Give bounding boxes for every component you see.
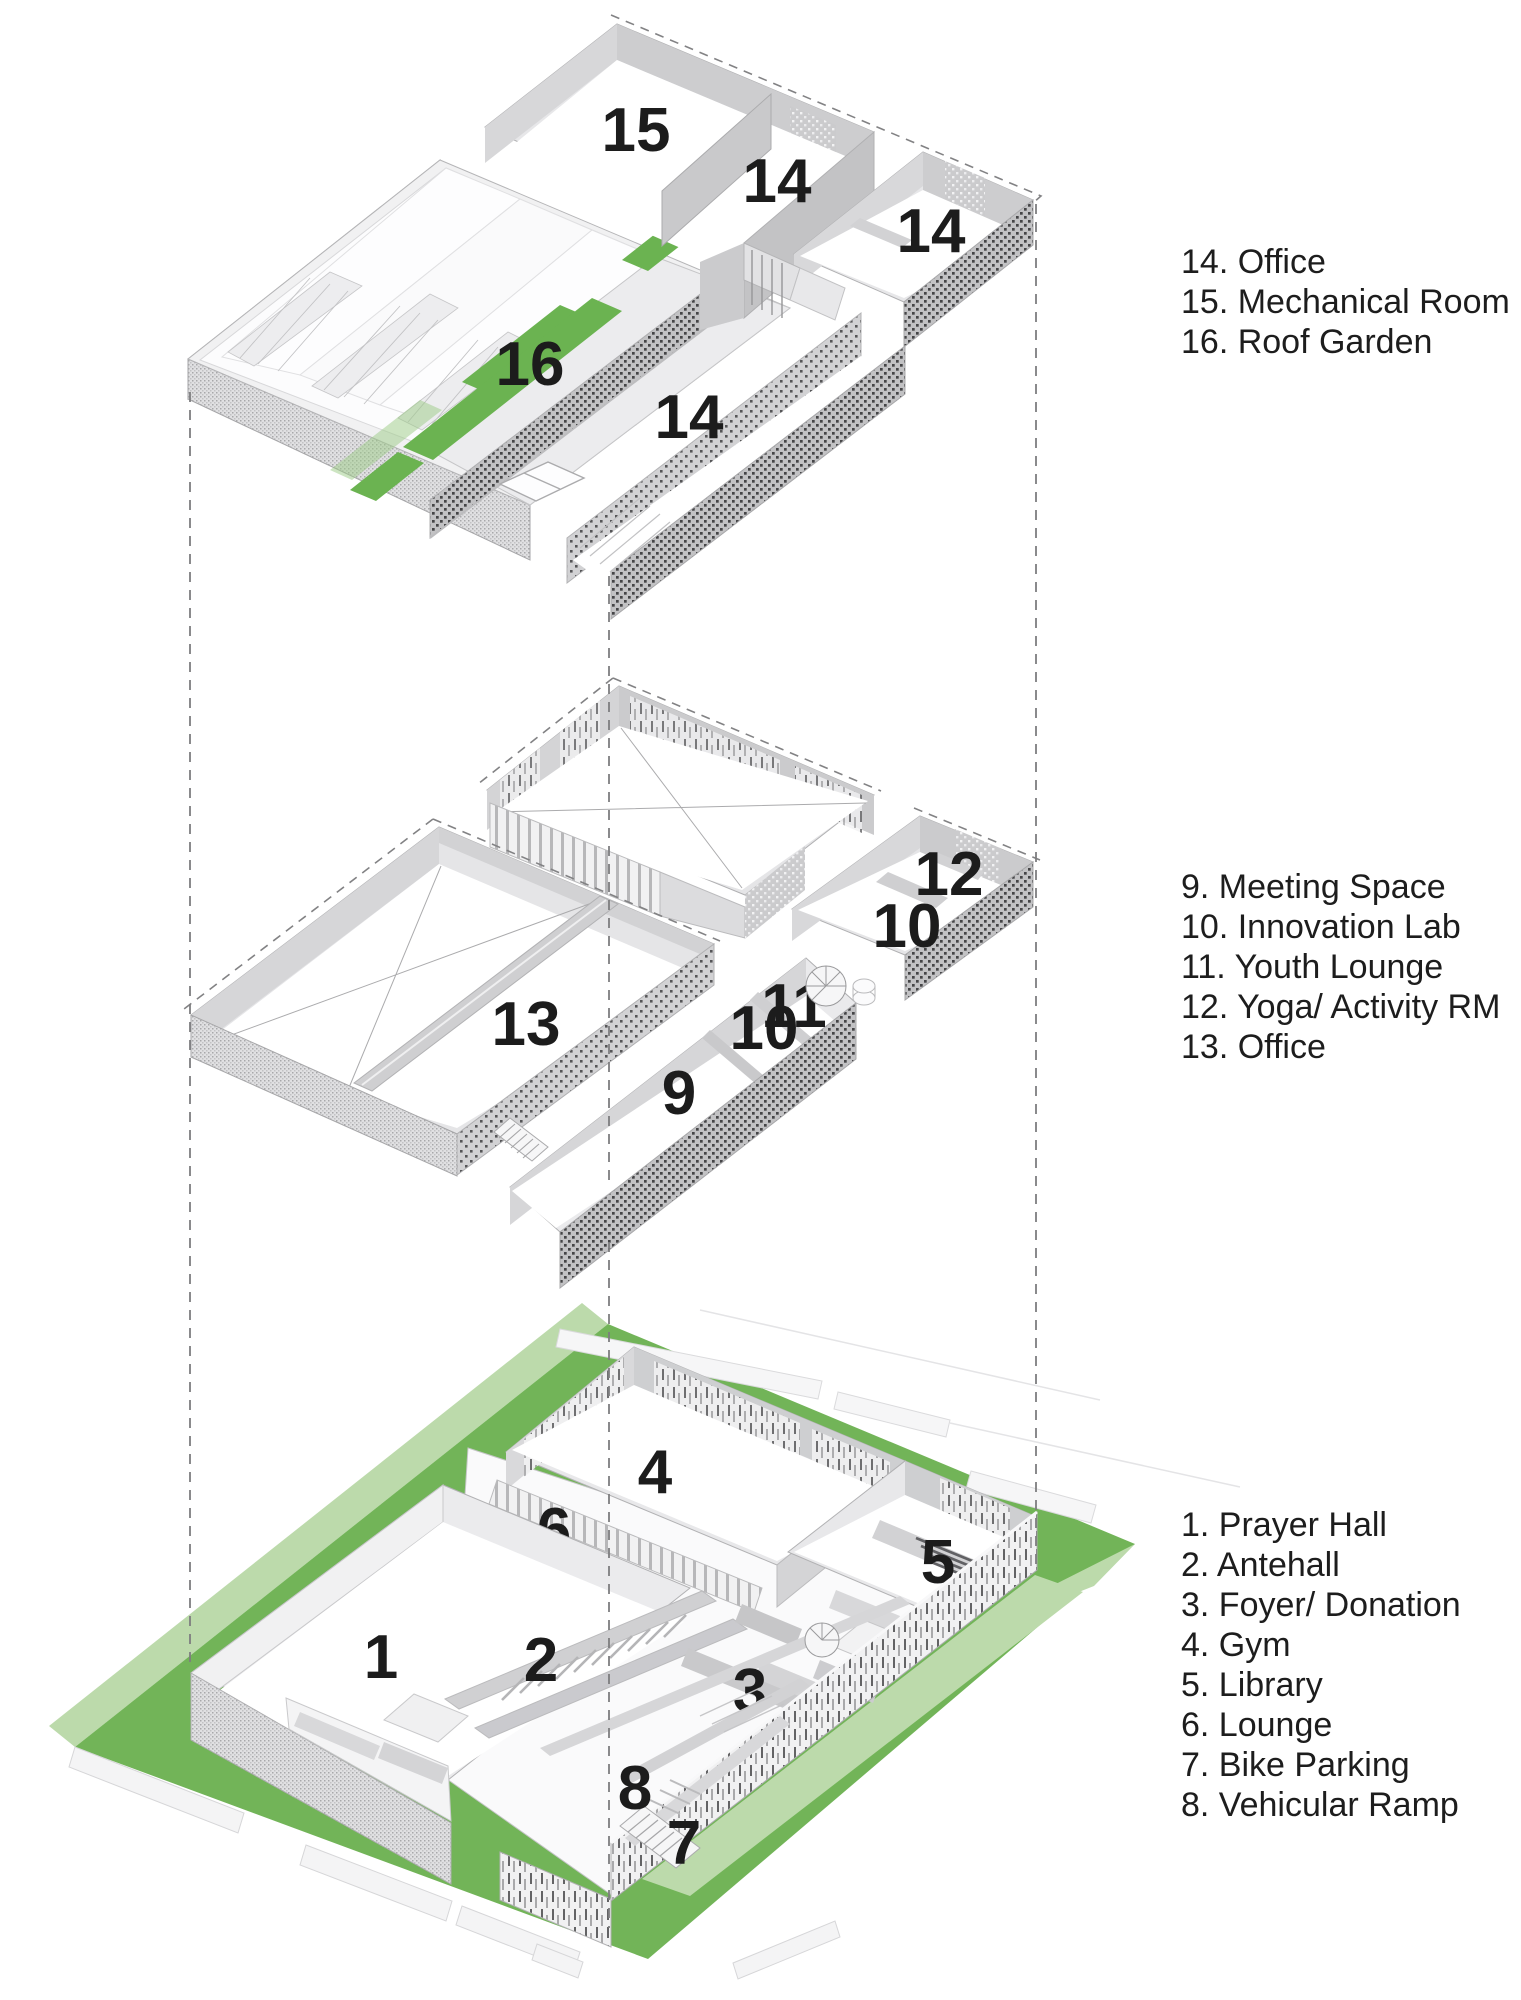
svg-text:2. Antehall: 2. Antehall [1181, 1546, 1340, 1584]
svg-text:16: 16 [496, 330, 565, 399]
svg-text:11. Youth Lounge: 11. Youth Lounge [1181, 948, 1443, 986]
svg-text:7. Bike Parking: 7. Bike Parking [1181, 1746, 1410, 1784]
svg-text:15. Mechanical Room: 15. Mechanical Room [1181, 283, 1510, 321]
svg-text:4. Gym: 4. Gym [1181, 1626, 1291, 1664]
svg-text:8: 8 [618, 1754, 652, 1823]
svg-text:9. Meeting Space: 9. Meeting Space [1181, 868, 1446, 906]
svg-text:4: 4 [638, 1438, 673, 1507]
svg-text:5. Library: 5. Library [1181, 1666, 1323, 1704]
svg-text:3. Foyer/ Donation: 3. Foyer/ Donation [1181, 1586, 1461, 1624]
svg-text:2: 2 [524, 1626, 558, 1695]
svg-text:8. Vehicular Ramp: 8. Vehicular Ramp [1181, 1786, 1459, 1824]
svg-text:14: 14 [897, 197, 966, 266]
svg-text:13. Office: 13. Office [1181, 1028, 1326, 1066]
svg-text:7: 7 [667, 1809, 701, 1878]
svg-text:6. Lounge: 6. Lounge [1181, 1706, 1332, 1744]
svg-text:13: 13 [492, 990, 561, 1059]
svg-text:14: 14 [743, 147, 812, 216]
svg-text:14. Office: 14. Office [1181, 243, 1326, 281]
svg-text:10. Innovation Lab: 10. Innovation Lab [1181, 908, 1461, 946]
svg-text:10: 10 [873, 892, 942, 961]
svg-text:12. Yoga/ Activity RM: 12. Yoga/ Activity RM [1181, 988, 1500, 1026]
svg-text:1. Prayer Hall: 1. Prayer Hall [1181, 1506, 1387, 1544]
svg-text:15: 15 [602, 96, 671, 165]
svg-text:14: 14 [655, 383, 724, 452]
svg-text:16. Roof Garden: 16. Roof Garden [1181, 323, 1432, 361]
svg-text:1: 1 [364, 1623, 398, 1692]
svg-text:9: 9 [662, 1059, 696, 1128]
